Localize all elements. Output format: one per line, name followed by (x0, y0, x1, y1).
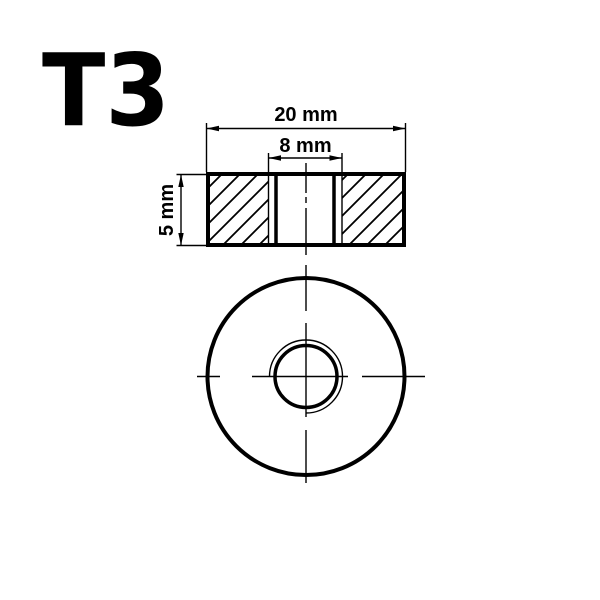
arrowhead-top (178, 175, 183, 188)
arrowhead-left (207, 126, 220, 131)
arrowhead-bottom (178, 233, 183, 246)
dimension-thickness: 5 mm (156, 175, 206, 246)
drawing-canvas: T3 (0, 0, 600, 600)
hatch-area-right (342, 176, 402, 243)
arrowhead-right (393, 126, 406, 131)
technical-drawing: T3 (0, 0, 600, 600)
dimension-label-thickness: 5 mm (156, 184, 178, 236)
hatch-area-left (210, 176, 269, 243)
part-title: T3 (42, 32, 170, 149)
dimension-hole-width: 8 mm (269, 135, 343, 173)
dimension-label-outer-width: 20 mm (274, 104, 337, 126)
dimension-label-hole-width: 8 mm (279, 135, 331, 157)
